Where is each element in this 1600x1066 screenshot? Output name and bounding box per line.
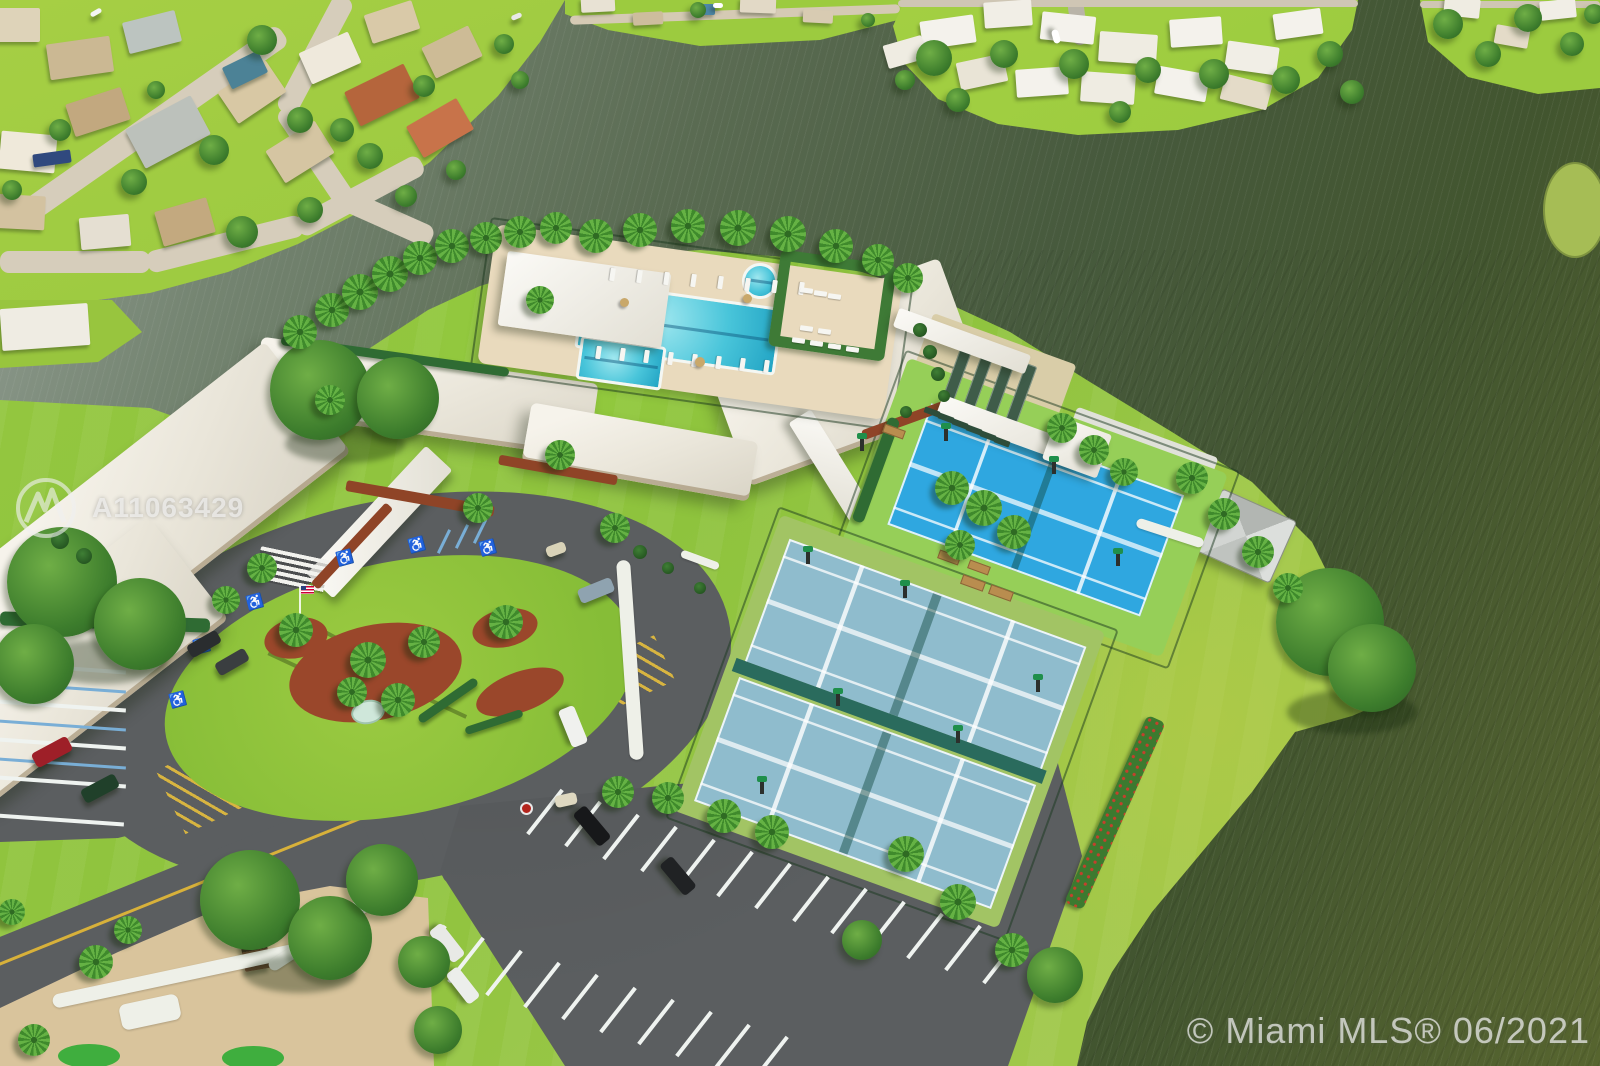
shrub (76, 548, 92, 564)
tree (1272, 66, 1300, 94)
shrub (900, 406, 912, 418)
house (1169, 16, 1223, 48)
tree (1199, 59, 1229, 89)
umbrella (695, 357, 705, 367)
car (577, 576, 616, 603)
tree (2, 180, 22, 200)
pool-lounger (827, 343, 841, 350)
parking-stripe (944, 925, 982, 972)
house (364, 0, 421, 44)
street (570, 4, 900, 25)
pool-lounger (739, 357, 746, 371)
palm-tree (945, 530, 975, 560)
palm-tree (1047, 413, 1077, 443)
car (545, 540, 568, 557)
palm-tree (337, 677, 367, 707)
handicap-line (0, 719, 126, 731)
tree (121, 169, 147, 195)
palm-tree (707, 799, 741, 833)
parking-stripe (716, 851, 754, 898)
house (1539, 0, 1577, 20)
light-pole (1116, 554, 1120, 566)
walk-path (616, 560, 644, 760)
palm-tree (623, 213, 657, 247)
house (983, 0, 1033, 29)
tree (226, 216, 258, 248)
handicap-line (0, 757, 126, 769)
umbrella (743, 294, 752, 303)
tree (1059, 49, 1089, 79)
palm-tree (888, 836, 924, 872)
palm-tree (652, 782, 684, 814)
parking-stripe (523, 962, 561, 1009)
pool-lounger (771, 279, 778, 293)
house (406, 98, 474, 158)
pool-lounger (763, 359, 770, 373)
house (803, 9, 834, 24)
car (558, 704, 589, 747)
pool-lounger (636, 269, 643, 283)
car (90, 7, 103, 17)
shrub (938, 390, 950, 402)
pool-lounger (744, 277, 751, 291)
handicap-symbol: ♿ (406, 536, 423, 553)
house (581, 0, 616, 12)
handicap-symbol: ♿ (334, 549, 351, 566)
pool-lounger (791, 337, 805, 344)
parking-stripe (675, 1011, 713, 1058)
light-pole (760, 782, 764, 794)
light-pole (944, 429, 948, 441)
palm-tree (579, 219, 613, 253)
bench (988, 584, 1014, 602)
shrub (662, 562, 674, 574)
street (0, 251, 150, 273)
shrub (633, 545, 647, 559)
shrub (913, 323, 927, 337)
pool-lounger (817, 328, 831, 335)
tree (1340, 80, 1364, 104)
palm-tree (720, 210, 756, 246)
pool-lounger (809, 340, 823, 347)
palm-tree (862, 244, 894, 276)
tree (357, 143, 383, 169)
tree (511, 71, 529, 89)
palm-tree (526, 286, 554, 314)
tree (199, 135, 229, 165)
tree (494, 34, 514, 54)
handicap-line (437, 529, 451, 554)
house (79, 214, 132, 250)
tree (1433, 9, 1463, 39)
house (344, 63, 420, 126)
tree (1135, 57, 1161, 83)
palm-tree (545, 440, 575, 470)
tree (395, 185, 417, 207)
tree (990, 40, 1018, 68)
tree (287, 107, 313, 133)
tree (1584, 4, 1600, 24)
palm-tree (755, 815, 789, 849)
palm-tree (1273, 573, 1303, 603)
tree (413, 75, 435, 97)
palm-tree (935, 471, 969, 505)
palm-tree (0, 899, 25, 925)
car (80, 772, 121, 803)
car (445, 965, 480, 1004)
pool-lounger (717, 275, 724, 289)
palm-tree (470, 222, 502, 254)
palm-tree (671, 209, 705, 243)
pool-lounger (595, 345, 602, 359)
light-pole (903, 586, 907, 598)
palm-tree (940, 884, 976, 920)
palm-tree (770, 216, 806, 252)
palm-tree (408, 626, 440, 658)
palm-tree (540, 212, 572, 244)
mls-watermark: A11063429 (14, 476, 244, 540)
pool-lounger (813, 290, 827, 297)
light-pole (1052, 462, 1056, 474)
tree (1514, 4, 1542, 32)
tree (0, 624, 74, 704)
parking-stripe-left (0, 700, 126, 713)
shrub (931, 367, 945, 381)
tree (94, 578, 186, 670)
handicap-line (455, 524, 469, 549)
palm-tree (1242, 536, 1274, 568)
palm-tree (435, 229, 469, 263)
parking-stripe (713, 1024, 751, 1066)
parking-stripe (792, 876, 830, 923)
house (0, 8, 40, 42)
tree (690, 2, 706, 18)
house (1272, 8, 1323, 40)
house (0, 194, 46, 231)
handicap-symbol: ♿ (167, 691, 184, 708)
palm-tree (463, 493, 493, 523)
parking-stripe-left (0, 814, 124, 827)
tree (895, 70, 915, 90)
tree (414, 1006, 462, 1054)
light-pole (836, 694, 840, 706)
palm-tree (1079, 435, 1109, 465)
tree (446, 160, 466, 180)
house (421, 25, 483, 78)
parking-stripe (599, 987, 637, 1034)
palm-tree (247, 553, 277, 583)
pool-lounger (715, 355, 722, 369)
palm-tree (819, 229, 853, 263)
mls-credit-watermark: © Miami MLS® 06/2021 (1187, 1010, 1590, 1052)
house (1040, 11, 1097, 44)
palm-tree (1176, 462, 1208, 494)
parking-stripe (751, 1036, 789, 1066)
walk-path (118, 993, 182, 1031)
bench (960, 574, 986, 592)
bench (967, 559, 991, 575)
palm-tree (966, 490, 1002, 526)
parking-stripe (906, 913, 944, 960)
pool-lounger (619, 347, 626, 361)
tree (1328, 624, 1416, 712)
shrub (923, 345, 937, 359)
tree (297, 197, 323, 223)
pool-lounger (609, 267, 616, 281)
palm-tree (18, 1024, 50, 1056)
walk-path (680, 549, 720, 570)
palm-tree (1208, 498, 1240, 530)
handicap-symbol: ♿ (477, 539, 494, 556)
umbrella (620, 298, 629, 307)
palm-tree (602, 776, 634, 808)
car (186, 629, 222, 658)
tree (916, 40, 952, 76)
tree (147, 81, 165, 99)
parking-stripe (754, 863, 792, 910)
palm-tree (350, 642, 386, 678)
tree (946, 88, 970, 112)
tree (357, 357, 439, 439)
car (659, 856, 697, 897)
pool-lounger (799, 287, 813, 294)
tree (1560, 32, 1584, 56)
tree (49, 119, 71, 141)
house (65, 87, 131, 137)
car (214, 647, 250, 676)
light-pole (806, 552, 810, 564)
tree (842, 920, 882, 960)
mulch-strip (311, 502, 393, 589)
house (740, 0, 777, 13)
tree (346, 844, 418, 916)
parking-stripe (561, 974, 599, 1021)
palm-tree (283, 315, 317, 349)
palm-tree (279, 613, 313, 647)
tree (1109, 101, 1131, 123)
pool-lounger (690, 273, 697, 287)
pool-lounger (663, 271, 670, 285)
listing-id-watermark: A11063429 (92, 492, 244, 524)
shrub (694, 582, 706, 594)
handicap-symbol: ♿ (244, 593, 261, 610)
tree (1027, 947, 1083, 1003)
palm-tree (79, 945, 113, 979)
house (122, 10, 182, 54)
car (510, 11, 522, 20)
pool-lounger (643, 349, 650, 363)
tree (861, 13, 875, 27)
mls-logo-icon (14, 476, 78, 540)
pool-lounger (799, 325, 813, 332)
parking-stripe (485, 950, 523, 997)
pool-lounger (667, 351, 674, 365)
pool-lounger (827, 293, 841, 300)
palm-tree (600, 513, 630, 543)
palm-tree (893, 263, 923, 293)
house (298, 31, 361, 84)
street (898, 0, 1358, 7)
light-pole (1036, 680, 1040, 692)
tree (1475, 41, 1501, 67)
palm-tree (212, 586, 240, 614)
light-pole (860, 439, 864, 451)
walk-path (1135, 517, 1205, 548)
palm-tree (114, 916, 142, 944)
house (633, 11, 664, 26)
palm-tree (1110, 458, 1138, 486)
palm-tree (381, 683, 415, 717)
parking-stripe (637, 999, 675, 1046)
tree (200, 850, 300, 950)
tree (1317, 41, 1343, 67)
palm-tree (504, 216, 536, 248)
palm-tree (995, 933, 1029, 967)
aerial-photo: ♿♿♿♿♿♿ A11063429 © Miami MLS® 06/2021 (0, 0, 1600, 1066)
stop-sign (520, 802, 533, 815)
palm-tree (997, 515, 1031, 549)
car (713, 3, 723, 8)
palm-tree (403, 241, 437, 275)
light-pole (956, 731, 960, 743)
palm-tree (315, 385, 345, 415)
tree (247, 25, 277, 55)
house (1224, 41, 1279, 76)
tree (330, 118, 354, 142)
house (46, 36, 114, 81)
house (0, 303, 90, 351)
palm-tree (489, 605, 523, 639)
pool-lounger (845, 346, 859, 353)
house (1080, 71, 1136, 105)
tree (398, 936, 450, 988)
